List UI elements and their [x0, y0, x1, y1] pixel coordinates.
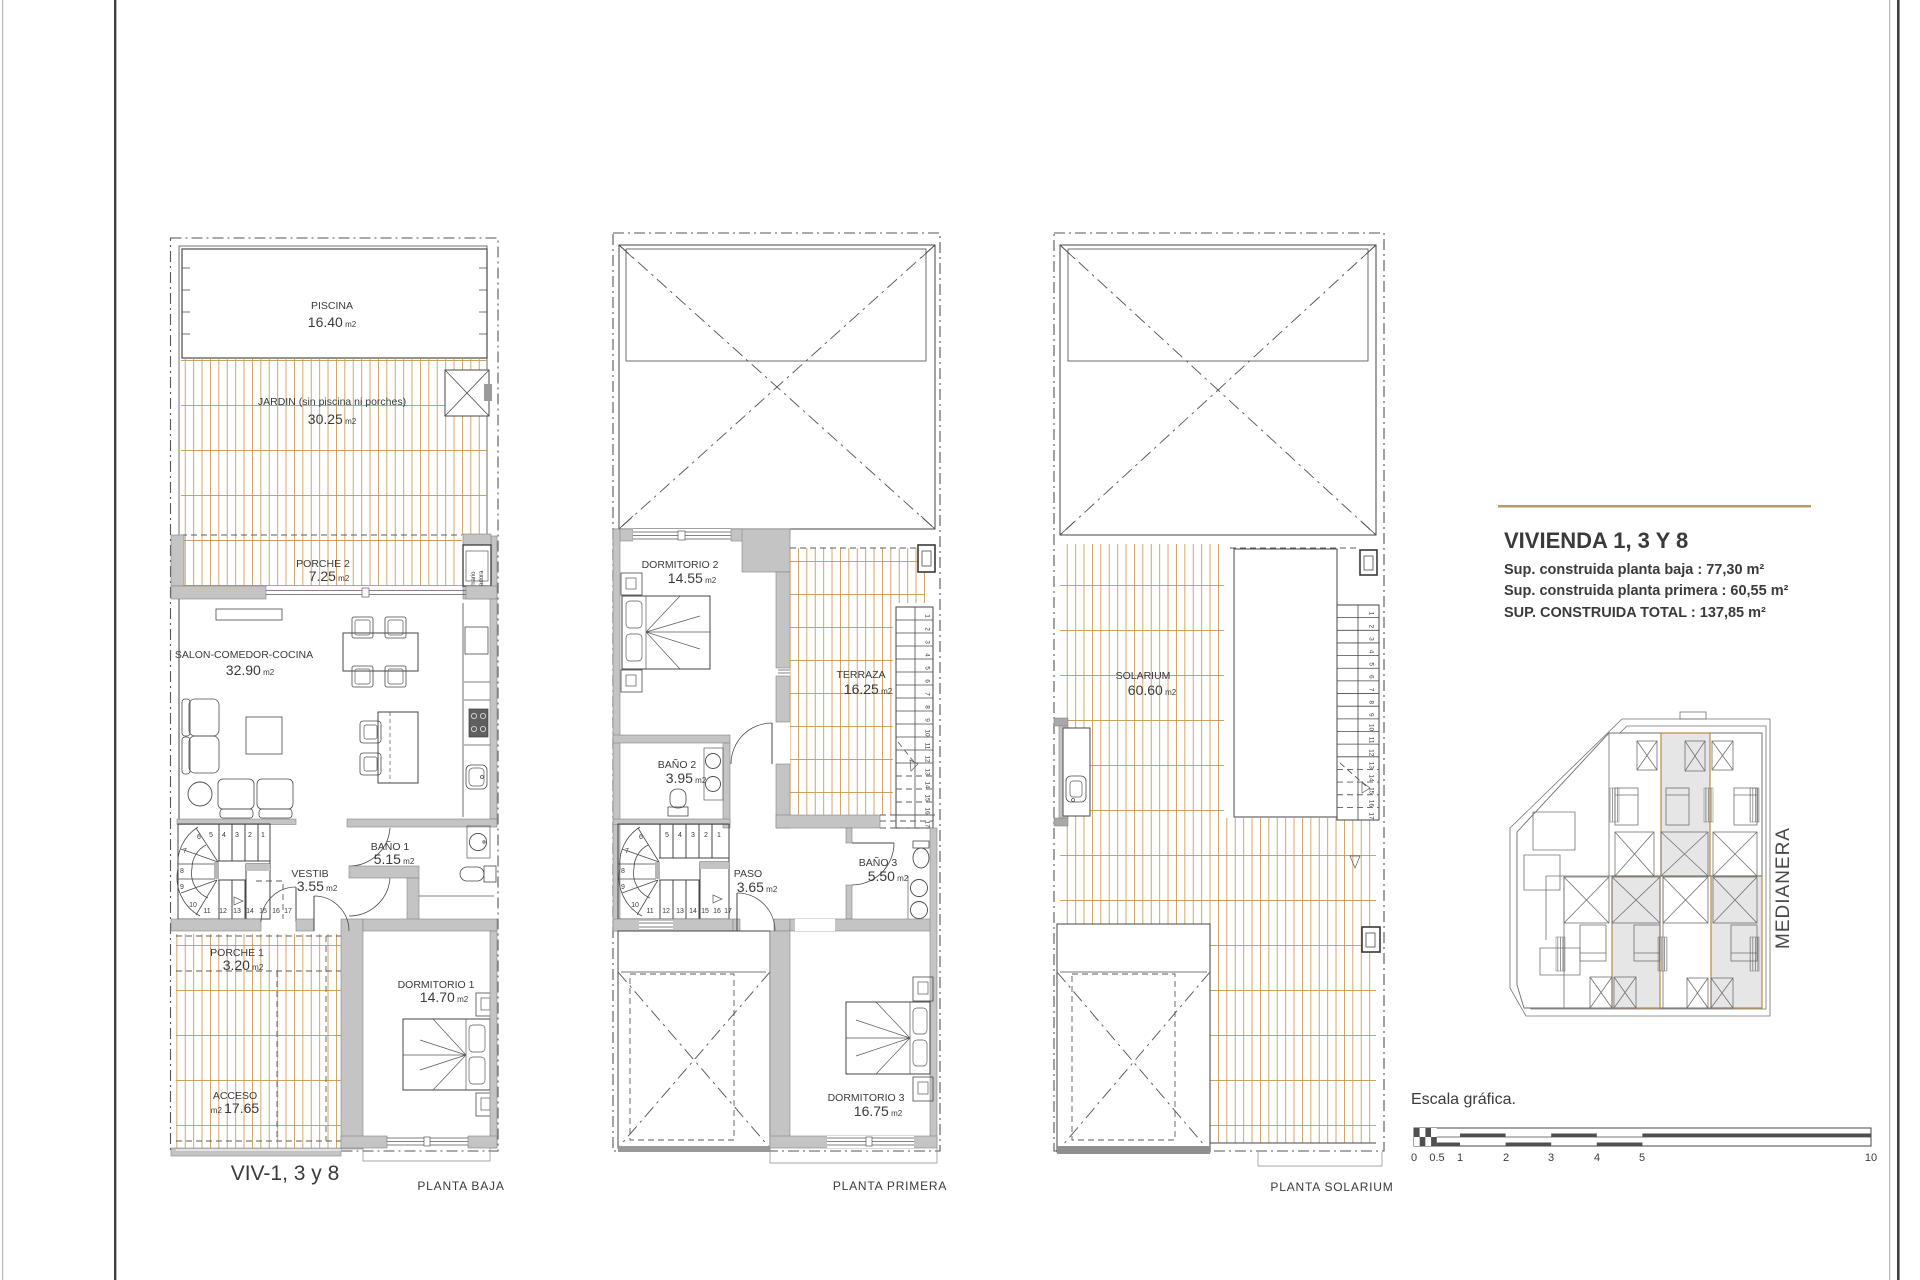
svg-text:10: 10	[924, 729, 931, 737]
svg-text:SALON-COMEDOR-COCINA: SALON-COMEDOR-COCINA	[175, 649, 313, 661]
svg-text:3: 3	[924, 640, 931, 644]
svg-text:PLANTA SOLARIUM: PLANTA SOLARIUM	[1270, 1180, 1393, 1194]
svg-text:14: 14	[1368, 774, 1375, 782]
svg-text:PLANTA BAJA: PLANTA BAJA	[417, 1179, 504, 1193]
svg-text:4: 4	[1594, 1152, 1600, 1164]
svg-text:12: 12	[662, 908, 670, 915]
svg-text:0.5: 0.5	[1429, 1152, 1444, 1164]
svg-text:3: 3	[1368, 637, 1375, 641]
svg-text:11: 11	[924, 743, 931, 750]
svg-text:14: 14	[689, 908, 697, 915]
svg-text:SUP. CONSTRUIDA TOTAL : 137,85: SUP. CONSTRUIDA TOTAL : 137,85 m²	[1504, 605, 1766, 621]
svg-text:13: 13	[1368, 762, 1375, 770]
svg-text:6: 6	[197, 834, 201, 841]
svg-text:5: 5	[209, 832, 213, 839]
svg-text:17: 17	[284, 908, 292, 915]
svg-text:10: 10	[631, 902, 639, 909]
svg-text:VIV-1, 3 y 8: VIV-1, 3 y 8	[231, 1162, 340, 1185]
svg-text:12: 12	[219, 908, 227, 915]
svg-text:PISCINA: PISCINA	[311, 300, 353, 312]
svg-text:3: 3	[1548, 1152, 1554, 1164]
svg-text:10: 10	[1368, 724, 1375, 732]
svg-text:15: 15	[701, 908, 709, 915]
svg-text:15: 15	[1368, 787, 1375, 795]
svg-text:Escala gráfica.: Escala gráfica.	[1411, 1091, 1516, 1108]
svg-text:PLANTA PRIMERA: PLANTA PRIMERA	[833, 1179, 947, 1193]
svg-text:2: 2	[924, 627, 931, 631]
svg-text:TERRAZA: TERRAZA	[836, 669, 885, 681]
svg-text:4: 4	[1368, 650, 1375, 654]
svg-text:6: 6	[1368, 675, 1375, 679]
svg-text:2: 2	[704, 832, 708, 839]
svg-text:13: 13	[676, 908, 684, 915]
svg-text:10: 10	[189, 902, 197, 909]
svg-text:13: 13	[924, 768, 931, 776]
svg-text:9: 9	[621, 884, 625, 891]
svg-text:SOLARIUM: SOLARIUM	[1116, 670, 1171, 682]
svg-text:5: 5	[665, 832, 669, 839]
svg-text:JARDIN (sin piscina ni porches: JARDIN (sin piscina ni porches)	[258, 396, 406, 408]
svg-text:4: 4	[222, 832, 226, 839]
svg-text:17: 17	[1368, 812, 1375, 820]
svg-text:1: 1	[924, 614, 931, 618]
svg-text:2: 2	[1503, 1152, 1509, 1164]
svg-text:8: 8	[1368, 700, 1375, 704]
svg-text:1: 1	[1457, 1152, 1463, 1164]
svg-text:6: 6	[924, 679, 931, 683]
svg-text:12: 12	[924, 755, 931, 763]
svg-text:11: 11	[1368, 737, 1375, 744]
svg-text:16: 16	[924, 807, 931, 815]
svg-text:8: 8	[924, 705, 931, 709]
svg-text:14: 14	[246, 908, 254, 915]
svg-text:2: 2	[1368, 624, 1375, 628]
svg-text:2: 2	[248, 832, 252, 839]
svg-text:13: 13	[233, 908, 241, 915]
svg-text:1: 1	[1368, 612, 1375, 616]
svg-text:17: 17	[924, 820, 931, 828]
svg-text:1: 1	[261, 832, 265, 839]
svg-text:14: 14	[924, 781, 931, 789]
svg-text:5: 5	[1639, 1152, 1645, 1164]
svg-text:9: 9	[924, 718, 931, 722]
svg-text:Sup. construida planta primera: Sup. construida planta primera : 60,55 m…	[1504, 583, 1789, 599]
svg-text:5: 5	[924, 666, 931, 670]
svg-text:8: 8	[621, 868, 625, 875]
svg-text:1: 1	[717, 832, 721, 839]
svg-text:0: 0	[1411, 1152, 1417, 1164]
svg-text:4: 4	[924, 653, 931, 657]
svg-text:3: 3	[691, 832, 695, 839]
svg-text:7: 7	[183, 848, 187, 855]
svg-text:7: 7	[924, 692, 931, 696]
svg-text:11: 11	[646, 908, 653, 915]
svg-text:16: 16	[1368, 800, 1375, 808]
svg-text:5: 5	[1368, 662, 1375, 666]
svg-text:VIVIENDA 1, 3 Y 8: VIVIENDA 1, 3 Y 8	[1504, 528, 1688, 553]
svg-text:15: 15	[924, 794, 931, 802]
svg-text:4: 4	[678, 832, 682, 839]
svg-text:9: 9	[1368, 713, 1375, 717]
svg-text:16: 16	[272, 908, 280, 915]
svg-text:3: 3	[235, 832, 239, 839]
svg-text:7: 7	[1368, 688, 1375, 692]
svg-text:MEDIANERA: MEDIANERA	[1773, 827, 1794, 949]
svg-text:17: 17	[724, 908, 732, 915]
svg-text:16: 16	[713, 908, 721, 915]
svg-text:Sup. construida planta baja :: Sup. construida planta baja : 77,30 m²	[1504, 562, 1764, 578]
svg-text:9: 9	[180, 884, 184, 891]
svg-text:7: 7	[625, 848, 629, 855]
svg-text:10: 10	[1865, 1152, 1877, 1164]
svg-text:12: 12	[1368, 749, 1375, 757]
svg-text:11: 11	[203, 908, 210, 915]
svg-text:8: 8	[180, 868, 184, 875]
svg-text:6: 6	[639, 834, 643, 841]
